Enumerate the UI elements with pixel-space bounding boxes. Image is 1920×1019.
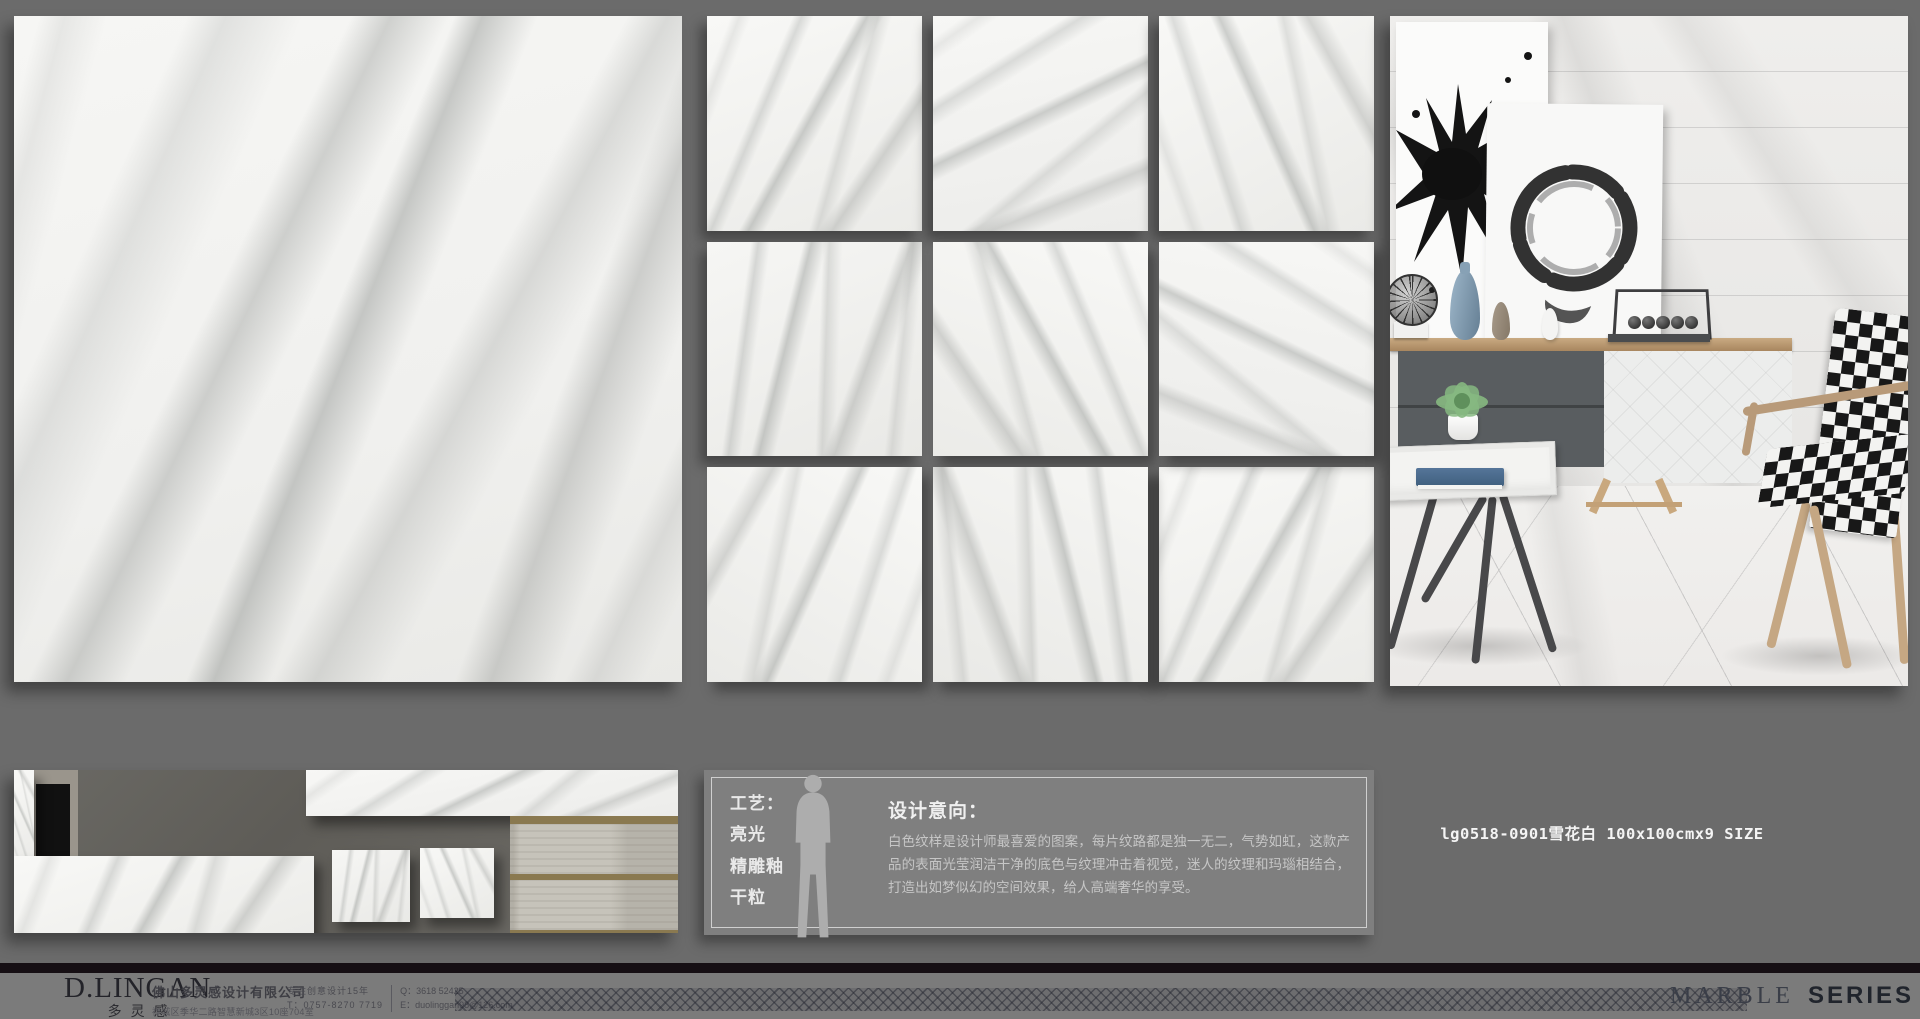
process-item: 干粒: [730, 882, 784, 913]
intent-body: 白色纹样是设计师最喜爱的图案，每片纹路都是独一无二，气势如虹，这款产品的表面光莹…: [888, 830, 1350, 900]
tile-application-montage: [14, 770, 678, 933]
footer-black-bar: [0, 963, 1920, 973]
montage-marble-square: [332, 850, 410, 922]
series-title: MARBLE SERIES: [1670, 982, 1914, 1010]
process-item: 亮光: [730, 819, 784, 850]
series-word-marble: MARBLE: [1670, 983, 1794, 1010]
wood-plank: [510, 880, 678, 930]
grid-tile: [1159, 242, 1374, 457]
grid-tile: [707, 467, 922, 682]
slogan: 专注创意设计15年: [287, 985, 383, 999]
sideboard-stretcher: [1586, 502, 1682, 507]
contact-left-column: 专注创意设计15年 T：0757-8270 7719: [287, 985, 383, 1012]
marble-product-board: 工艺： 亮光 精雕釉 干粒 设计意向： 白色纹样是设计师最喜爱的图案，每片纹路都…: [0, 0, 1920, 1019]
montage-black-strip: [36, 784, 70, 858]
blue-book: [1416, 468, 1504, 486]
grid-tile: [933, 242, 1148, 457]
grid-tile: [707, 16, 922, 231]
series-word-series: SERIES: [1808, 982, 1914, 1010]
process-title: 工艺：: [730, 788, 784, 819]
person-silhouette-icon: [784, 773, 842, 947]
sideboard-cabinet: [1604, 351, 1792, 483]
process-list: 工艺： 亮光 精雕釉 干粒: [730, 788, 784, 914]
newton-cradle-frame: [1612, 289, 1711, 339]
intent-title: 设计意向：: [888, 796, 988, 823]
marble-tile-grid: [707, 16, 1374, 682]
montage-marble-strip: [14, 770, 34, 865]
montage-marble-plank: [306, 770, 678, 816]
montage-marble-square: [420, 848, 494, 918]
grid-tile: [933, 16, 1148, 231]
grid-tile: [1159, 16, 1374, 231]
room-scene-render: [1390, 16, 1908, 686]
large-marble-slab-image: [14, 16, 682, 682]
telephone: T：0757-8270 7719: [287, 999, 383, 1013]
process-item: 精雕釉: [730, 851, 784, 882]
grid-tile: [933, 467, 1148, 682]
newton-cradle-base: [1608, 334, 1710, 342]
product-code-label: lg0518-0901雪花白 100x100cmx9 SIZE: [1437, 822, 1767, 844]
montage-wood-planks: [510, 816, 678, 933]
crosshatch-pattern-band: [455, 988, 1747, 1011]
chair-floor-shadow: [1720, 636, 1908, 676]
montage-marble-slab: [14, 856, 314, 933]
white-vase: [1542, 308, 1558, 340]
sideboard-wood-top: [1390, 338, 1792, 351]
succulent-plant-icon: [1434, 382, 1490, 422]
grid-tile: [1159, 467, 1374, 682]
table-floor-shadow: [1390, 626, 1590, 666]
wood-plank: [510, 824, 678, 874]
newton-cradle-balls: [1628, 316, 1698, 329]
design-info-panel: 工艺： 亮光 精雕釉 干粒 设计意向： 白色纹样是设计师最喜爱的图案，每片纹路都…: [704, 770, 1374, 935]
grid-tile: [707, 242, 922, 457]
